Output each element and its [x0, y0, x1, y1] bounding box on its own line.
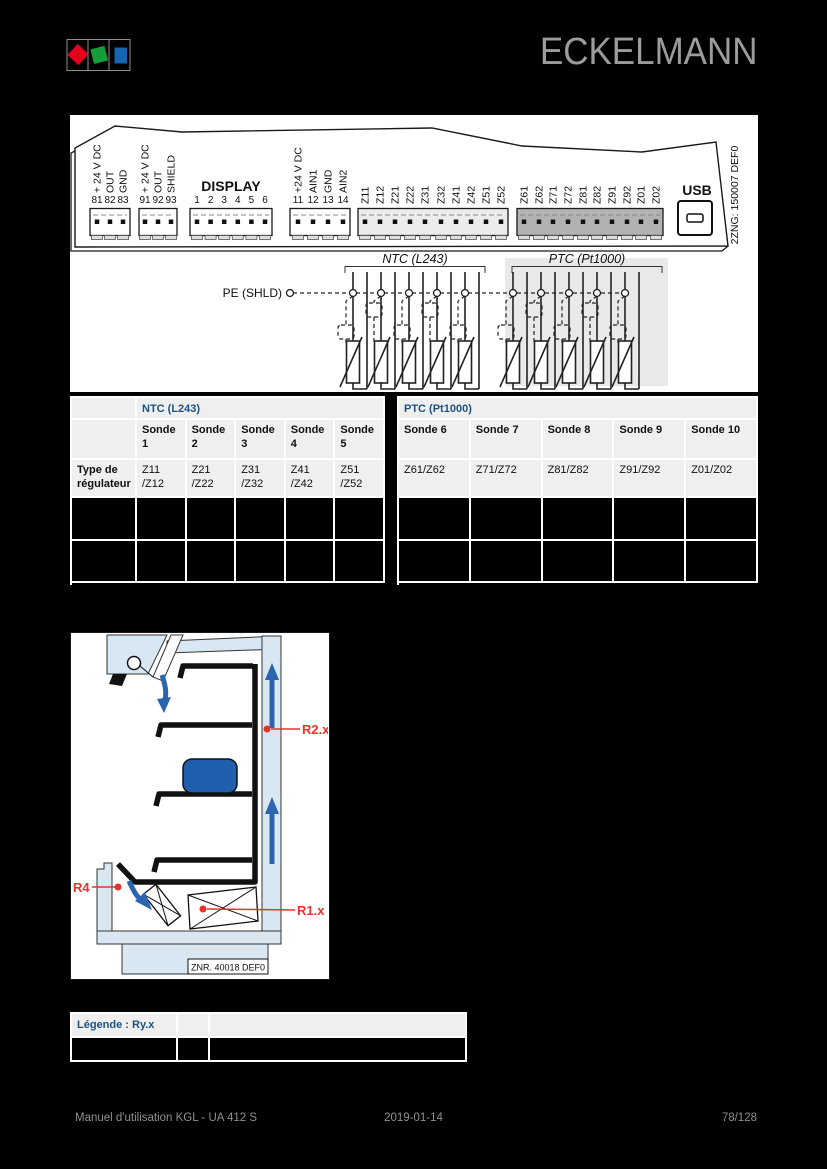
terminal-foot [338, 236, 349, 240]
pin-label: Z51 [481, 186, 493, 204]
page-footer: Manuel d'utilisation KGL - UA 412 S 2019… [0, 1112, 827, 1130]
table-blank-cell [614, 498, 686, 541]
device-part-number-label: 2ZNG: 150007 DEF0 [729, 146, 741, 245]
pin-label: + 24 V DC [140, 144, 152, 193]
pin-number: 6 [262, 195, 268, 206]
terminal-foot [451, 236, 462, 240]
terminal-pin [222, 220, 227, 225]
table-terminal-sonde-5: Z51 /Z52 [335, 460, 385, 498]
terminal-pin [484, 220, 489, 225]
terminal-foot [140, 236, 151, 240]
table-col-sonde-10: Sonde 10 [686, 420, 758, 460]
table-blank-cell [686, 498, 758, 541]
terminal-foot [118, 236, 129, 240]
sensor-return-wire [437, 383, 451, 389]
terminal-foot [246, 236, 257, 240]
ntc-sensor-2 [366, 272, 395, 389]
terminal-foot [405, 236, 416, 240]
shield-drop [458, 296, 465, 325]
table-blank-cell [72, 498, 137, 541]
shield-node [350, 290, 357, 297]
r1-sensor-dot [200, 906, 207, 913]
terminal-pin [522, 220, 527, 225]
shield-node [462, 290, 469, 297]
table-blank-cell [399, 541, 471, 583]
pin-label: OUT [105, 170, 117, 193]
table-col-sonde-4: Sonde 4 [286, 420, 336, 460]
pin-number: 92 [152, 195, 164, 206]
table-terminal-sonde-10: Z01/Z02 [686, 460, 758, 498]
table-col-sonde-3: Sonde 3 [236, 420, 286, 460]
pe-node [287, 290, 294, 297]
pin-number: 81 [91, 195, 103, 206]
terminal-pin [537, 220, 542, 225]
table-terminal-sonde-6: Z61/Z62 [399, 460, 471, 498]
front-wall [97, 863, 112, 931]
table-terminal-sonde-4: Z41 /Z42 [286, 460, 336, 498]
terminal-pin [169, 220, 174, 225]
table-blank-cell [137, 541, 187, 583]
pin-label: Z11 [360, 187, 372, 204]
terminal-pin [156, 220, 161, 225]
pin-number: 1 [194, 195, 200, 206]
evaporator-icon [188, 887, 258, 929]
pin-label: Z41 [451, 186, 463, 204]
pin-label: Z31 [420, 186, 432, 204]
terminal-foot [232, 236, 243, 240]
usb-port-icon [678, 201, 712, 235]
r1-leader [207, 909, 295, 910]
table-blank-cell [335, 541, 385, 583]
table-row-label: Type de régulateur [72, 460, 137, 498]
znr-label: ZNR. 40018 DEF0 [191, 963, 265, 973]
logo-red-square [67, 44, 88, 65]
table-blank-cell [471, 541, 543, 583]
table-header-ntc: NTC (L243) [137, 398, 385, 420]
table-terminal-sonde-9: Z91/Z92 [614, 460, 686, 498]
terminal-foot [323, 236, 334, 240]
pin-label: Z81 [578, 186, 590, 204]
table-col-sonde-7: Sonde 7 [471, 420, 543, 460]
pin-number: 91 [139, 195, 151, 206]
terminal-pin [625, 220, 630, 225]
sensor-return-wire [465, 383, 479, 389]
r2-label: R2.x [302, 722, 328, 737]
terminal-foot [466, 236, 477, 240]
table-blank-cell [399, 498, 471, 541]
table-blank-cell [187, 541, 237, 583]
ptc-zone-background [505, 258, 668, 386]
pin-label: Z32 [436, 186, 448, 204]
table-terminal-sonde-2: Z21 /Z22 [187, 460, 237, 498]
table-blank-cell [236, 498, 286, 541]
pin-label: Z71 [548, 186, 560, 204]
shield-node [622, 290, 629, 297]
pin-label: Z12 [375, 186, 387, 204]
pin-label: Z92 [622, 186, 634, 204]
pin-label: + 24 V DC [92, 144, 104, 193]
pin-number: 11 [293, 195, 304, 206]
terminal-foot [260, 236, 271, 240]
table-col-sonde-5: Sonde 5 [335, 420, 385, 460]
terminal-foot [153, 236, 164, 240]
table-blank-cell [72, 541, 137, 583]
ptc-group-label: PTC (Pt1000) [549, 252, 625, 266]
terminal-pin [378, 220, 383, 225]
terminal-foot [592, 236, 603, 240]
terminal-pin [363, 220, 368, 225]
terminal-wiring-figure: 81+ 24 V DC82OUT83GND91+ 24 V DC92OUT93S… [70, 115, 758, 392]
table-blank-cell [543, 541, 615, 583]
terminal-foot [563, 236, 574, 240]
table-col-sonde-8: Sonde 8 [543, 420, 615, 460]
shield-clamp [422, 303, 438, 317]
terminal-foot [496, 236, 507, 240]
terminal-foot [420, 236, 431, 240]
legend-cell [72, 1038, 178, 1062]
terminal-pin [326, 220, 331, 225]
pin-label: Z72 [563, 186, 575, 204]
terminal-pin [610, 220, 615, 225]
shelf-2 [158, 725, 252, 737]
pin-label: GND [323, 169, 335, 193]
terminal-pin [249, 220, 254, 225]
shield-clamp [394, 325, 410, 339]
shield-drop [430, 296, 437, 303]
shield-node [538, 290, 545, 297]
shield-clamp [338, 325, 354, 339]
pin-number: 83 [117, 195, 129, 206]
table-col-sonde-6: Sonde 6 [399, 420, 471, 460]
table-corner-cell [72, 398, 137, 420]
table-section-ptc: PTC (Pt1000)Sonde 6Sonde 7Sonde 8Sonde 9… [397, 396, 758, 585]
shield-drop [402, 296, 409, 325]
terminal-foot [651, 236, 662, 240]
table-blank-cell [471, 498, 543, 541]
pin-number: 3 [221, 195, 227, 206]
shield-node [406, 290, 413, 297]
footer-date: 2019-01-14 [0, 1112, 827, 1124]
table-col-sonde-9: Sonde 9 [614, 420, 686, 460]
terminal-foot [308, 236, 319, 240]
terminal-foot [205, 236, 216, 240]
terminal-foot [375, 236, 386, 240]
ntc-sensor-4 [422, 272, 451, 389]
terminal-pin [499, 220, 504, 225]
table-section-divider [385, 396, 397, 585]
usb-label: USB [682, 182, 712, 198]
terminal-pin [296, 220, 301, 225]
pin-number: 82 [104, 195, 116, 206]
legend-cell [210, 1038, 467, 1062]
table-blank-cell [543, 498, 615, 541]
terminal-pin [195, 220, 200, 225]
pin-label: SHIELD [166, 155, 178, 193]
table-blank-cell [187, 498, 237, 541]
sensor-return-wire [381, 383, 395, 389]
table-col-sonde-2: Sonde 2 [187, 420, 237, 460]
shield-node [566, 290, 573, 297]
terminal-pin [566, 220, 571, 225]
terminal-pin [595, 220, 600, 225]
table-terminal-sonde-1: Z11 /Z12 [137, 460, 187, 498]
tub-bottom [97, 931, 281, 944]
legend-table: Légende : Ry.x [70, 1012, 467, 1062]
pin-label: OUT [153, 170, 165, 193]
pin-number: 5 [249, 195, 255, 206]
shield-node [378, 290, 385, 297]
terminal-pin [208, 220, 213, 225]
legend-header-cell [210, 1014, 467, 1038]
shield-drop [346, 296, 353, 325]
pin-label: GND [118, 169, 130, 193]
pin-number: 4 [235, 195, 241, 206]
pin-label: AIN2 [338, 169, 350, 193]
table-blank-cell [335, 498, 385, 541]
pin-number: 2 [208, 195, 214, 206]
table-blank-cell [137, 498, 187, 541]
pe-shield-label: PE (SHLD) [223, 286, 282, 300]
pin-number: 93 [165, 195, 177, 206]
ntc-sensor-1 [338, 272, 367, 389]
pin-label: Z21 [390, 186, 402, 204]
pin-label: Z82 [592, 186, 604, 204]
legend-cell [178, 1038, 210, 1062]
shield-node [510, 290, 517, 297]
terminal-pin [393, 220, 398, 225]
table-blank-cell [614, 541, 686, 583]
pin-label: AIN1 [308, 169, 320, 193]
terminal-foot [219, 236, 230, 240]
ntc-group-label: NTC (L243) [382, 252, 447, 266]
eckelmann-logo-icon [66, 38, 132, 72]
table-terminal-sonde-3: Z31 /Z32 [236, 460, 286, 498]
table-blank-cell [236, 541, 286, 583]
table-blank-cell [286, 498, 336, 541]
terminal-pin [423, 220, 428, 225]
terminal-pin [341, 220, 346, 225]
terminal-foot [578, 236, 589, 240]
table-blank-cell [286, 541, 336, 583]
lamp-icon [128, 657, 141, 670]
terminal-pin [108, 220, 113, 225]
terminal-pin [121, 220, 126, 225]
r4-sensor-dot [115, 884, 122, 891]
sensor-return-wire [353, 383, 367, 389]
terminal-foot [390, 236, 401, 240]
table-header-ptc: PTC (Pt1000) [399, 398, 758, 420]
pin-label: Z22 [405, 186, 417, 204]
terminal-pin [439, 220, 444, 225]
sensor-return-wire [409, 383, 423, 389]
terminal-pin [454, 220, 459, 225]
cabinet-diagram: ZNR. 40018 DEF0 R2.x R4 R1.x [70, 632, 330, 980]
r2-sensor-dot [264, 726, 271, 733]
table-col-sonde-1: Sonde 1 [137, 420, 187, 460]
shield-node [434, 290, 441, 297]
sensor-assignment-table: NTC (L243)Sonde 1Sonde 2Sonde 3Sonde 4So… [70, 396, 758, 585]
brand-wordmark: ECKELMANN [539, 33, 757, 71]
terminal-pin [143, 220, 148, 225]
r4-label: R4 [73, 880, 90, 895]
display-group-label: DISPLAY [201, 178, 261, 194]
air-outlet-vane [109, 674, 127, 686]
pin-label: Z62 [534, 186, 546, 204]
terminal-foot [360, 236, 371, 240]
terminal-pin [654, 220, 659, 225]
r1-label: R1.x [297, 903, 325, 918]
pin-label: +24 V DC [293, 147, 305, 193]
shield-clamp [366, 303, 382, 317]
footer-page-number: 78/128 [722, 1112, 757, 1124]
logo-blue-square [115, 48, 128, 64]
table-empty-cell [72, 420, 137, 460]
terminal-foot [622, 236, 633, 240]
terminal-foot [636, 236, 647, 240]
terminal-pin [408, 220, 413, 225]
pin-label: Z61 [519, 186, 531, 204]
terminal-foot [92, 236, 103, 240]
terminal-foot [192, 236, 203, 240]
pin-label: Z01 [636, 186, 648, 204]
table-terminal-sonde-8: Z81/Z82 [543, 460, 615, 498]
terminal-pin [263, 220, 268, 225]
shelf-4 [154, 860, 252, 872]
terminal-pin [236, 220, 241, 225]
ntc-bracket [345, 267, 485, 274]
terminal-pin [639, 220, 644, 225]
legend-header-cell [178, 1014, 210, 1038]
pin-number: 13 [322, 195, 334, 206]
table-section-ntc: NTC (L243)Sonde 1Sonde 2Sonde 3Sonde 4So… [70, 396, 385, 585]
logo-green-square [90, 46, 108, 64]
shield-clamp [450, 325, 466, 339]
product-box [183, 759, 237, 793]
pin-label: Z02 [651, 186, 663, 204]
pin-number: 14 [337, 195, 349, 206]
ntc-sensor-5 [450, 272, 479, 389]
terminal-pin [469, 220, 474, 225]
ntc-sensor-3 [394, 272, 423, 389]
terminal-foot [519, 236, 530, 240]
table-terminal-sonde-7: Z71/Z72 [471, 460, 543, 498]
table-blank-cell [686, 541, 758, 583]
terminal-pin [95, 220, 100, 225]
pin-label: Z42 [466, 186, 478, 204]
terminal-foot [436, 236, 447, 240]
shelf-1 [180, 666, 253, 678]
terminal-pin [551, 220, 556, 225]
pin-number: 12 [307, 195, 319, 206]
terminal-foot [607, 236, 618, 240]
terminal-pin [311, 220, 316, 225]
terminal-foot [105, 236, 116, 240]
terminal-foot [481, 236, 492, 240]
terminal-foot [293, 236, 304, 240]
terminal-pin [581, 220, 586, 225]
pin-label: Z91 [607, 186, 619, 204]
shield-node [594, 290, 601, 297]
terminal-foot [534, 236, 545, 240]
shelf-3 [156, 794, 252, 806]
terminal-block-display [190, 209, 272, 236]
terminal-foot [548, 236, 559, 240]
terminal-foot [166, 236, 177, 240]
shield-drop [374, 296, 381, 303]
legend-title: Légende : Ry.x [72, 1014, 178, 1038]
pin-label: Z52 [496, 186, 508, 204]
